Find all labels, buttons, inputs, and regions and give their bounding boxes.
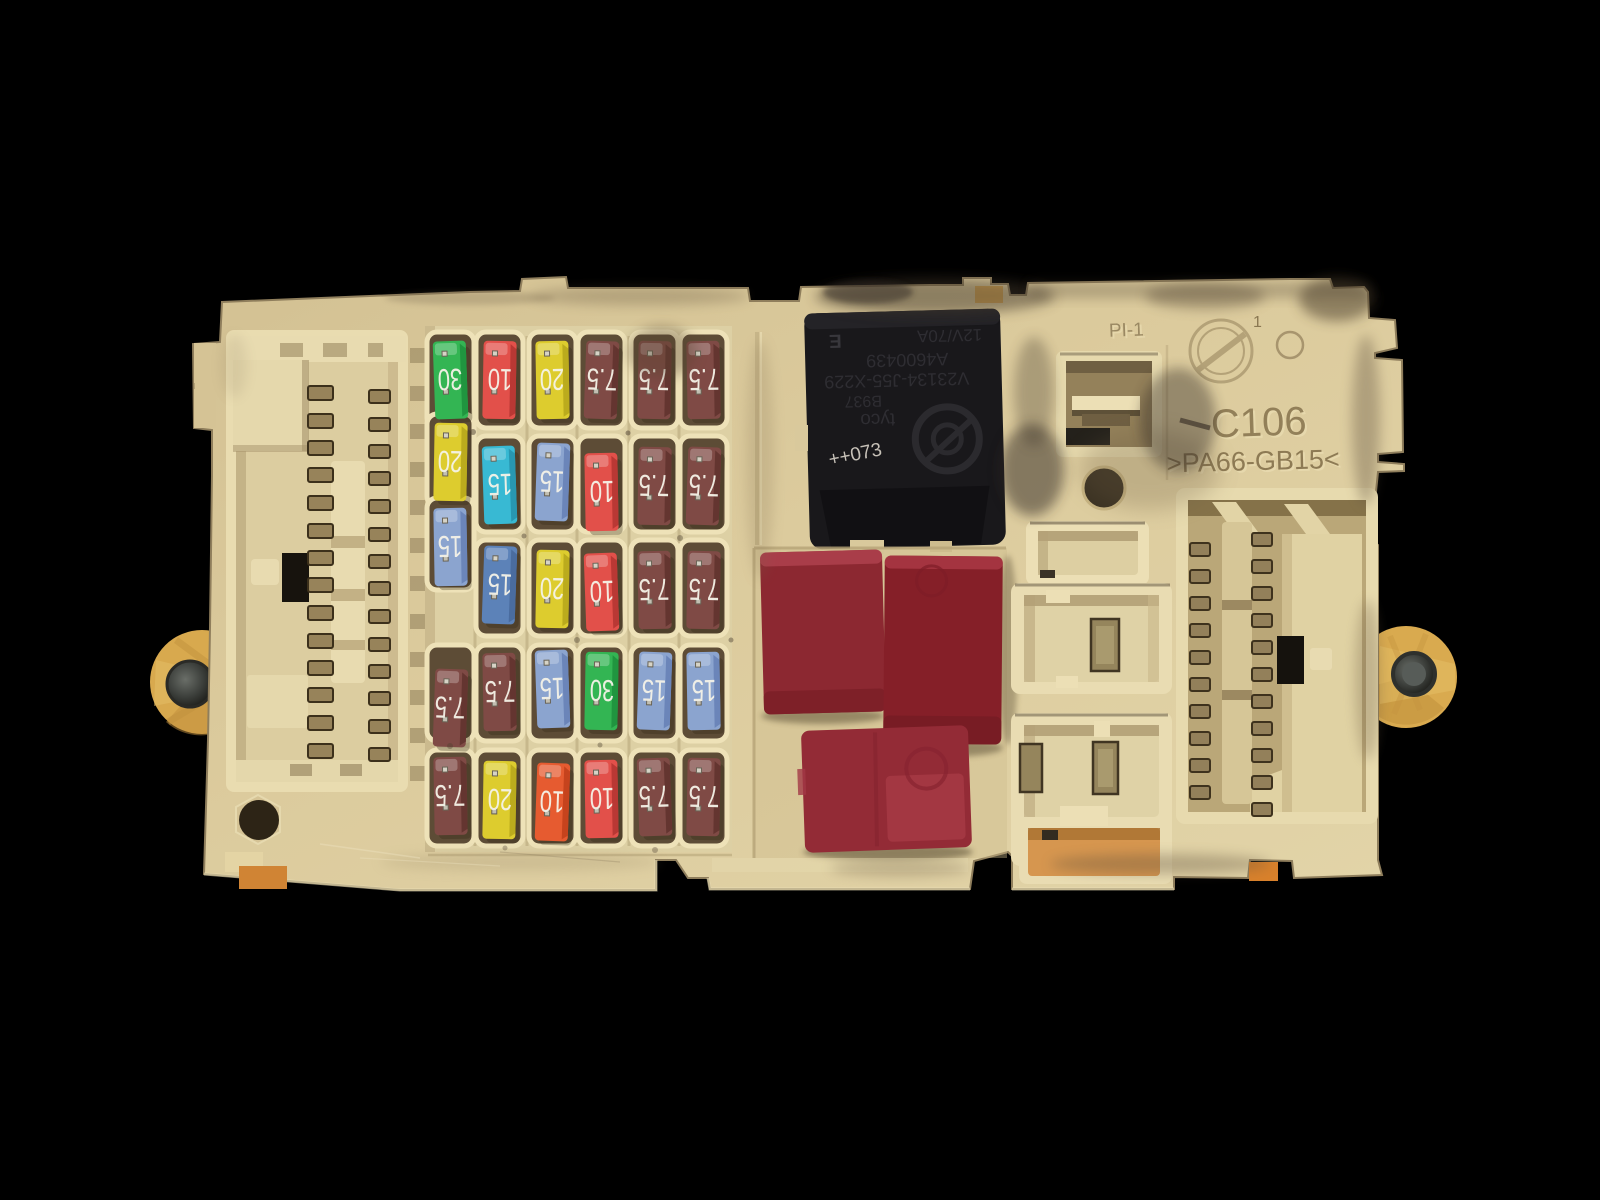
svg-text:10: 10 xyxy=(539,784,565,819)
svg-text:7.5: 7.5 xyxy=(484,674,515,709)
svg-text:12V/70A: 12V/70A xyxy=(916,325,982,346)
svg-text:30: 30 xyxy=(589,673,614,708)
svg-text:15: 15 xyxy=(487,567,513,602)
svg-text:PI-1: PI-1 xyxy=(1109,320,1145,342)
svg-text:A4600439: A4600439 xyxy=(866,349,949,371)
svg-text:7.5: 7.5 xyxy=(434,690,466,725)
svg-text:20: 20 xyxy=(539,362,564,397)
svg-text:7.5: 7.5 xyxy=(688,362,719,397)
svg-text:15: 15 xyxy=(641,673,667,708)
svg-text:20: 20 xyxy=(437,444,462,479)
svg-text:20: 20 xyxy=(487,782,512,817)
svg-text:7.5: 7.5 xyxy=(688,572,719,607)
svg-text:15: 15 xyxy=(691,673,716,708)
svg-text:B937: B937 xyxy=(844,392,882,410)
svg-text:7.5: 7.5 xyxy=(688,779,719,814)
svg-text:30: 30 xyxy=(437,362,463,397)
svg-text:20: 20 xyxy=(539,571,564,606)
svg-text:1: 1 xyxy=(1253,314,1262,331)
svg-text:10: 10 xyxy=(589,574,615,609)
svg-text:C106: C106 xyxy=(1210,399,1307,446)
svg-text:15: 15 xyxy=(539,464,565,499)
svg-text:15: 15 xyxy=(437,529,462,564)
svg-text:V23134-J55-X229: V23134-J55-X229 xyxy=(824,368,970,392)
svg-text:7.5: 7.5 xyxy=(638,468,669,503)
svg-text:7.5: 7.5 xyxy=(434,778,465,813)
svg-text:E: E xyxy=(829,330,842,351)
svg-text:tyco: tyco xyxy=(860,408,895,430)
svg-text:10: 10 xyxy=(589,781,614,816)
svg-text:10: 10 xyxy=(589,474,614,509)
svg-text:7.5: 7.5 xyxy=(586,362,618,397)
svg-text:7.5: 7.5 xyxy=(688,468,720,503)
svg-text:10: 10 xyxy=(487,362,512,397)
svg-text:15: 15 xyxy=(487,467,513,502)
svg-text:15: 15 xyxy=(539,671,565,706)
svg-text:7.5: 7.5 xyxy=(638,779,670,814)
svg-text:7.5: 7.5 xyxy=(638,572,669,607)
